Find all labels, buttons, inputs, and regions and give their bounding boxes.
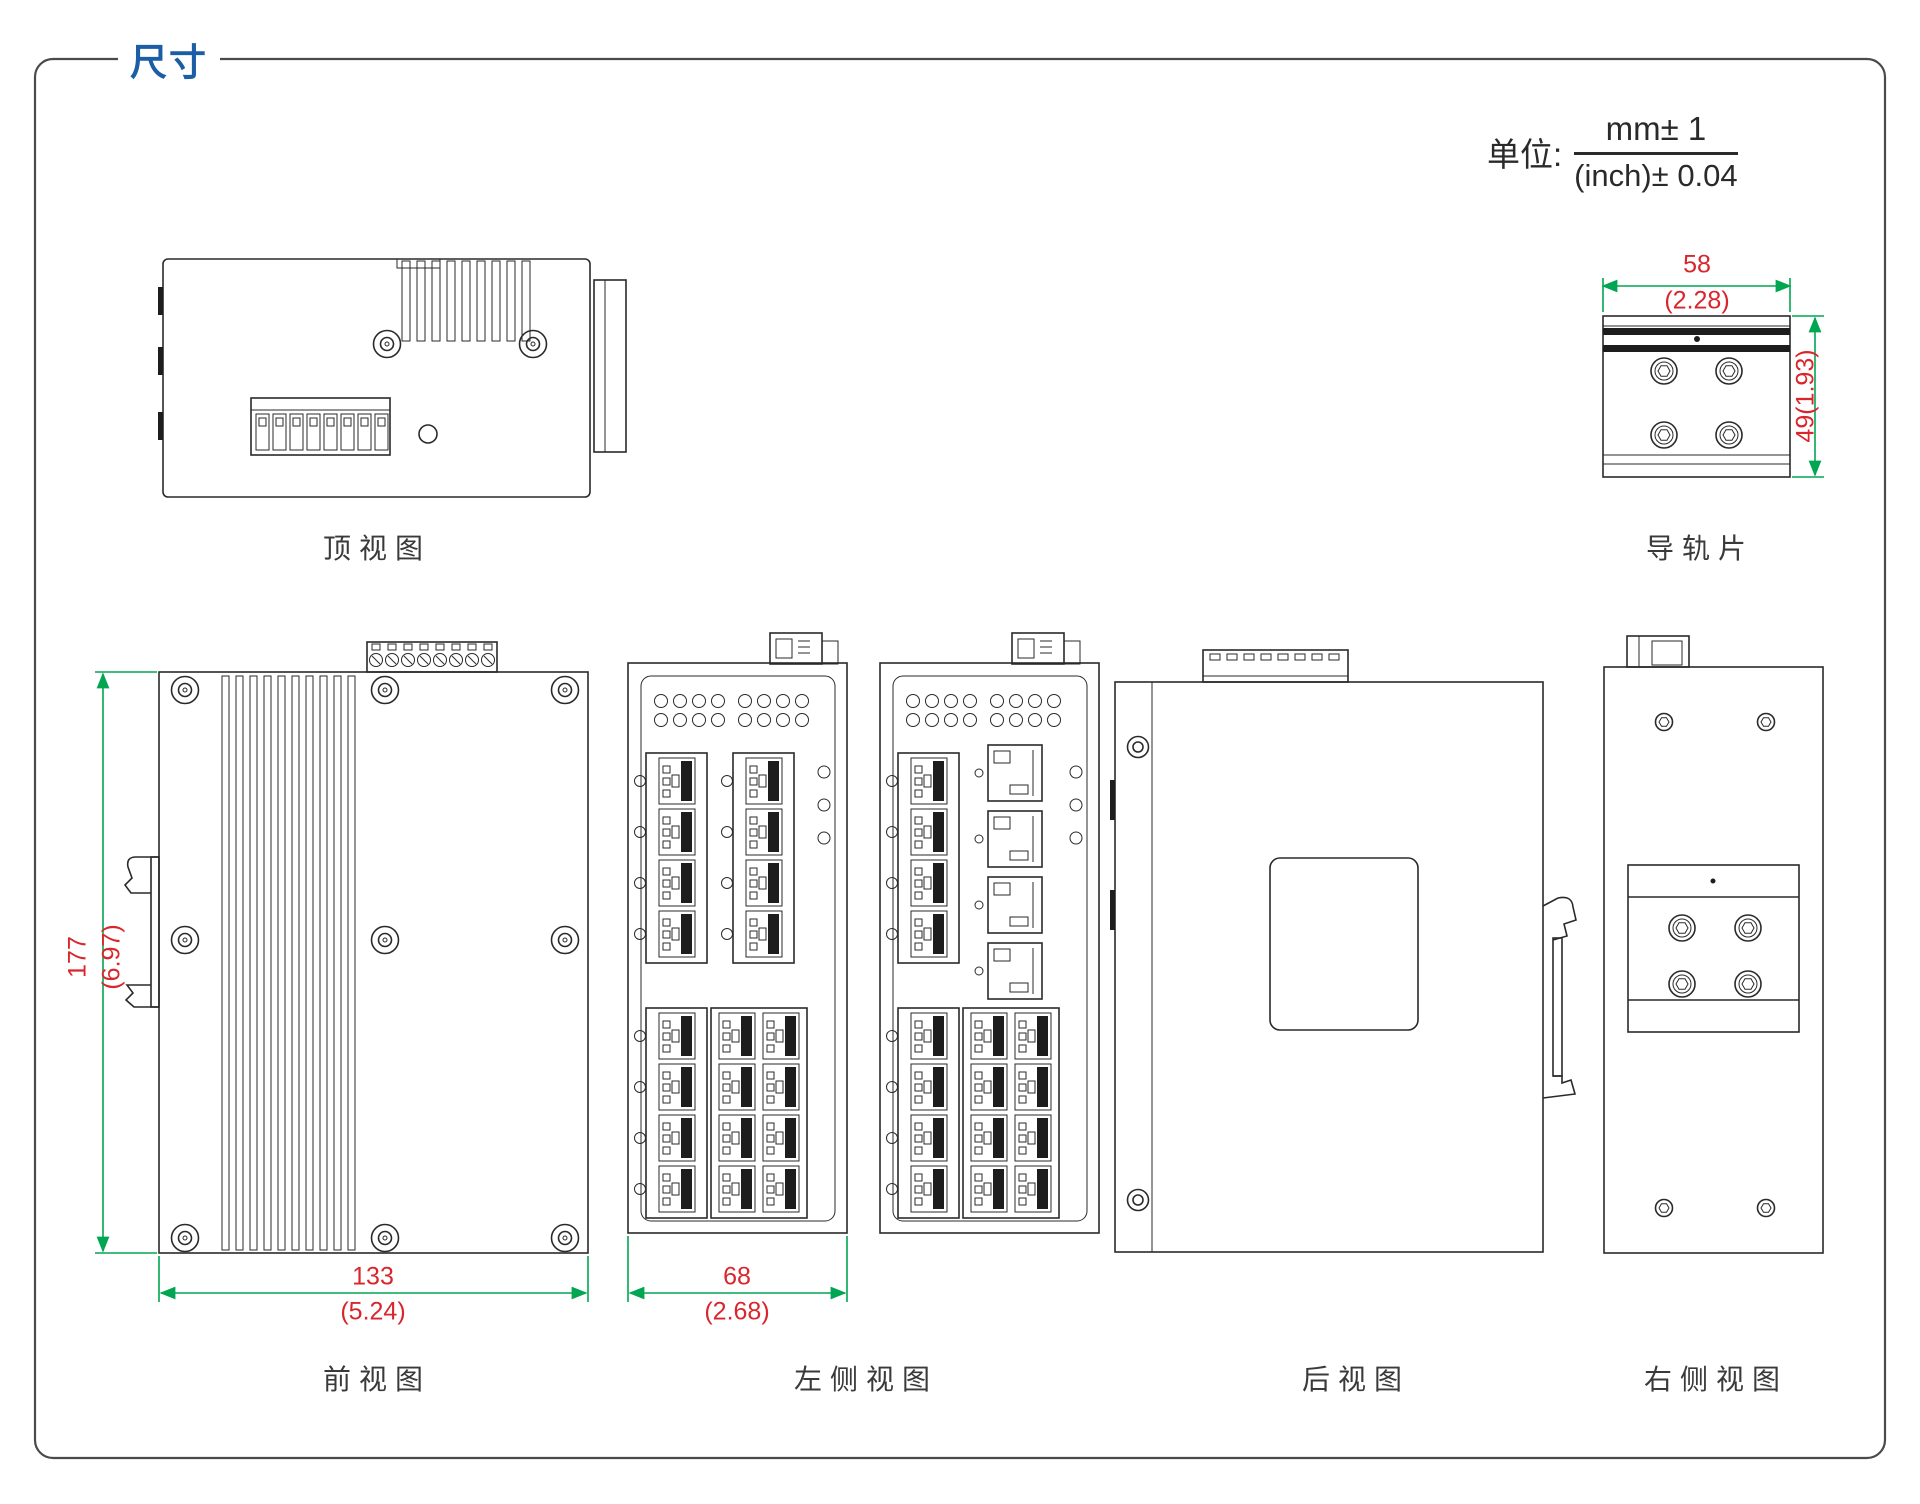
front-view-heatsink-fins [222, 676, 355, 1250]
dim-rail-width-mm: 58 [1683, 251, 1711, 280]
screw [1128, 737, 1149, 758]
dim-side-width-mm: 68 [723, 1263, 751, 1292]
top-view-terminal-block [251, 398, 390, 455]
screw [374, 331, 401, 358]
sfp-transceiver-top [770, 633, 838, 664]
led-indicators [655, 695, 725, 727]
rj45-port-column [887, 1008, 960, 1218]
led-indicators [991, 695, 1061, 727]
top-view-side-panel [594, 280, 626, 452]
rj45-port-column [635, 753, 708, 963]
units-inch: (inch)± 0.04 [1574, 155, 1737, 194]
units-label: 单位: [1487, 128, 1562, 176]
rj45-port-block [963, 1008, 1059, 1218]
led-indicators [739, 695, 809, 727]
rj45-port-column [635, 1008, 708, 1218]
mounting-hole [419, 425, 437, 443]
rail-plate-view [1603, 316, 1790, 477]
rj45-port-block [711, 1008, 807, 1218]
top-view-label: 顶视图 [323, 527, 431, 567]
rj45-port-column [887, 753, 960, 963]
left-side-view-a [628, 633, 847, 1233]
page-title: 尺寸 [118, 32, 220, 86]
rear-cutout [1270, 858, 1418, 1030]
dimension-drawing-page: 尺寸 单位: mm± 1 (inch)± 0.04 顶视图 导轨片 前视图 左侧… [0, 0, 1920, 1504]
front-view-label: 前视图 [323, 1358, 431, 1398]
sfp-transceiver-top [1012, 633, 1080, 664]
screw [1128, 1190, 1149, 1211]
top-view-heatsink-fins [402, 261, 530, 341]
dim-front-height-mm: 177 [64, 936, 93, 978]
rear-view-terminal-block [1203, 650, 1348, 682]
rear-view-label: 后视图 [1302, 1358, 1410, 1398]
screw [520, 331, 547, 358]
dim-front-height-inch: (6.97) [98, 924, 127, 989]
left-side-view-label: 左侧视图 [794, 1358, 938, 1398]
rear-view [1110, 650, 1576, 1252]
units-note: 单位: mm± 1 (inch)± 0.04 [1487, 110, 1738, 194]
drawing-canvas [0, 0, 1920, 1504]
dim-front-width-inch: (5.24) [340, 1298, 405, 1327]
din-rail-clip [1543, 897, 1576, 1098]
din-clip-top [1627, 636, 1689, 667]
dim-rail-width-inch: (2.28) [1664, 287, 1729, 316]
dim-side-width-inch: (2.68) [704, 1298, 769, 1327]
front-view [125, 642, 588, 1253]
dim-rail-height: 49(1.93) [1792, 349, 1821, 442]
din-rail-clip [125, 857, 159, 1007]
top-view [158, 259, 626, 497]
rj45-port-column [722, 753, 795, 963]
units-fraction: mm± 1 (inch)± 0.04 [1574, 110, 1737, 194]
units-mm: mm± 1 [1574, 110, 1737, 155]
front-view-terminal-block [367, 642, 497, 672]
right-side-view-label: 右侧视图 [1644, 1358, 1788, 1398]
rail-plate-label: 导轨片 [1646, 527, 1754, 567]
right-side-view [1604, 636, 1823, 1253]
dim-front-width-mm: 133 [352, 1263, 394, 1292]
left-side-view-b [880, 633, 1099, 1233]
rail-mount-plate [1628, 865, 1799, 1032]
sfp-cage-column [975, 745, 1042, 999]
led-indicators [907, 695, 977, 727]
